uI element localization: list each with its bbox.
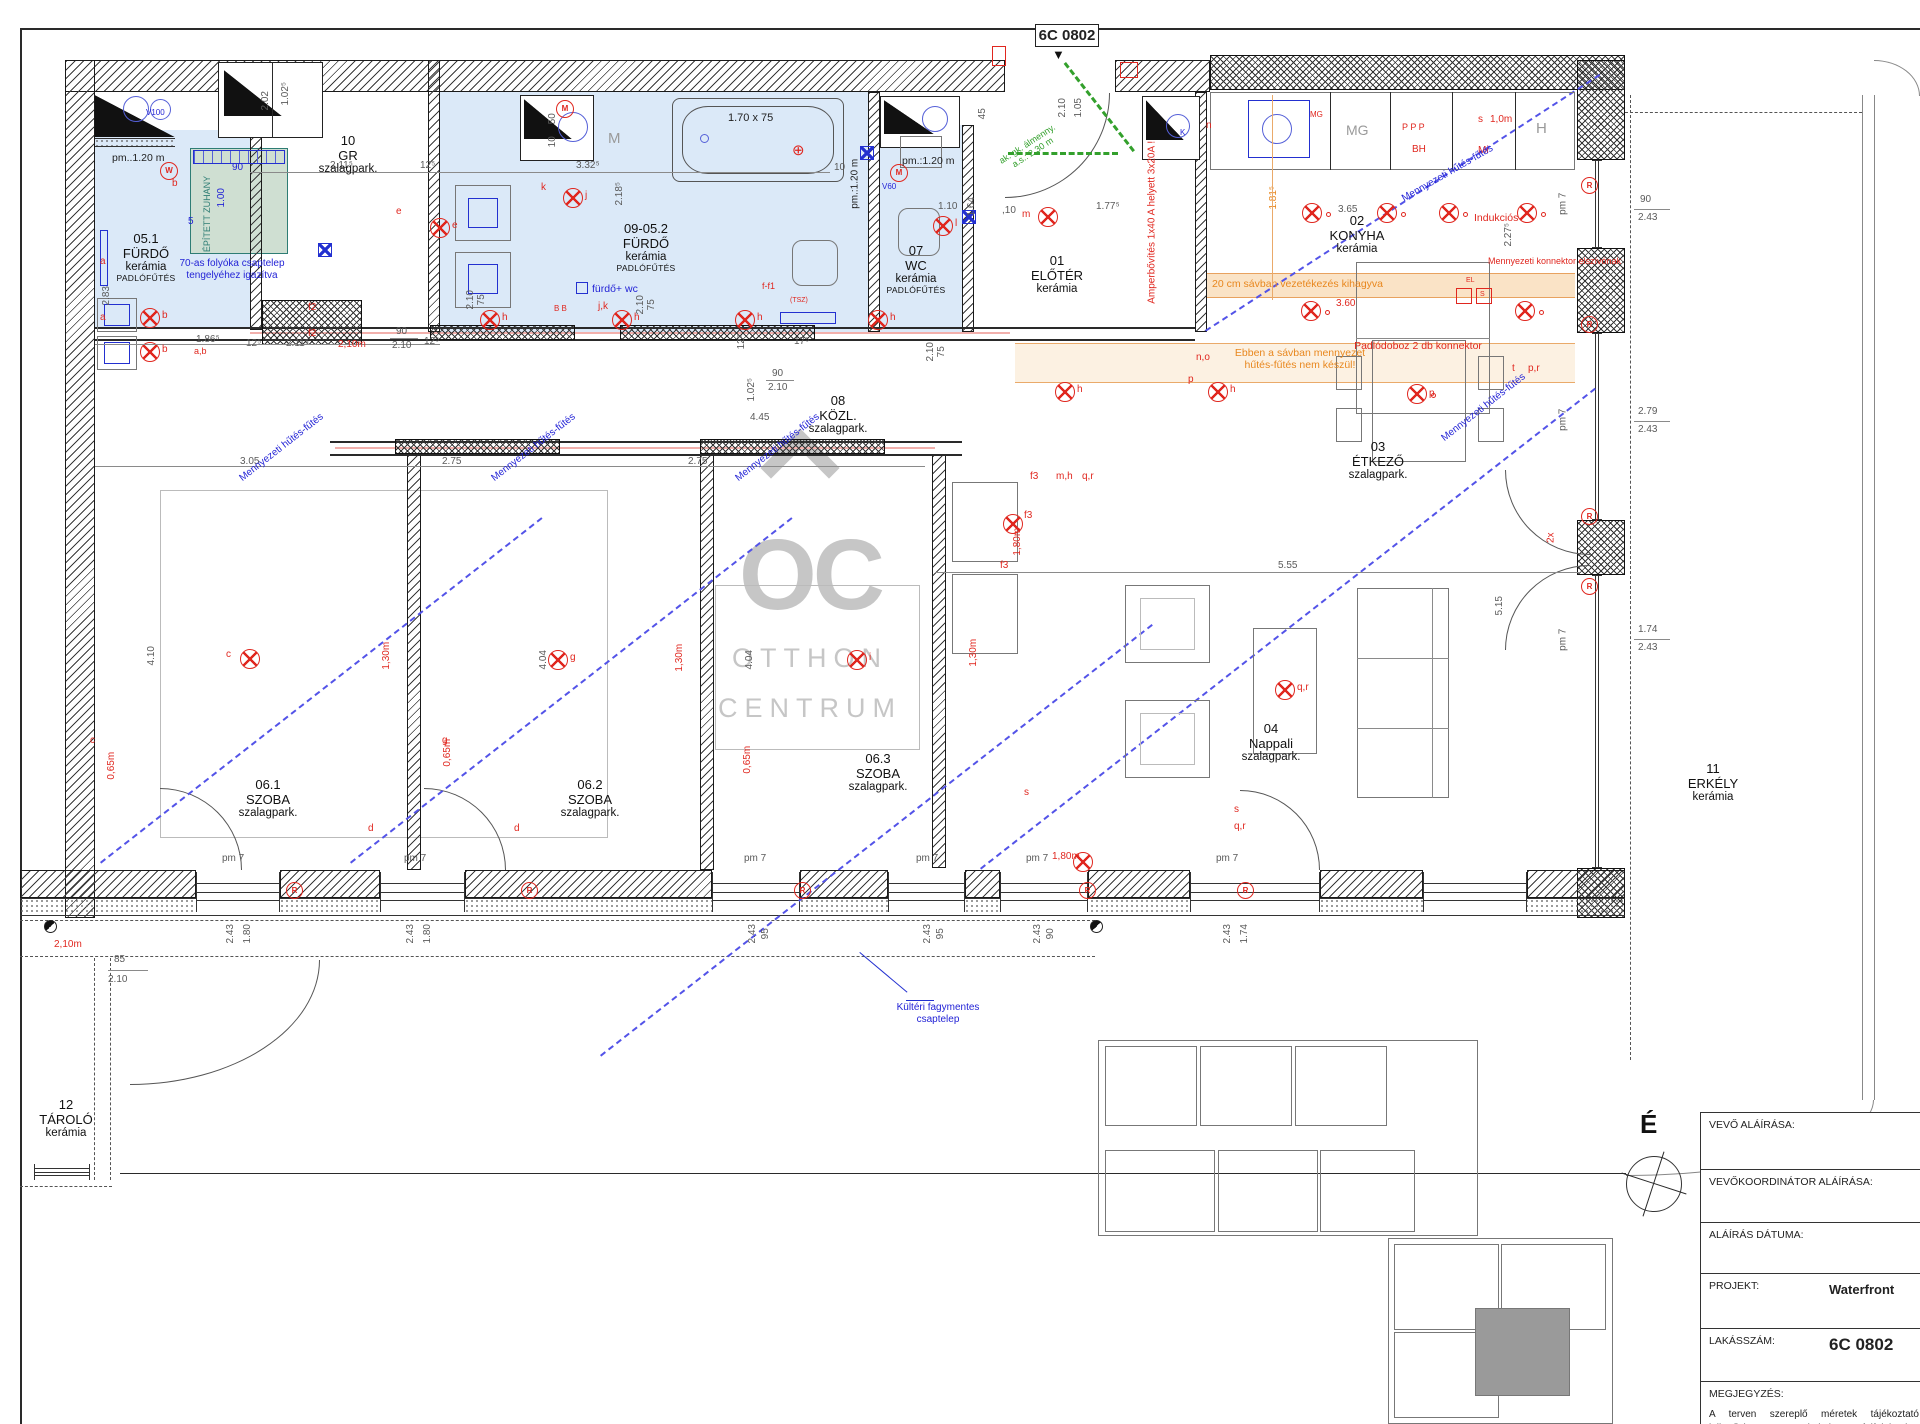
wall-top-kitchen	[1210, 55, 1625, 90]
shaft-div	[272, 62, 273, 138]
dim: 4.04	[538, 650, 550, 669]
dim: 2.02	[260, 91, 272, 110]
circuit-letter: a	[100, 256, 106, 268]
dim-line	[95, 344, 440, 345]
room-floorheating: PADLÓFŰTÉS	[116, 274, 175, 284]
room-label-06.3: 06.3SZOBAszalagpark.	[849, 752, 908, 794]
wall-bottom	[465, 870, 712, 898]
tub-drain	[700, 134, 709, 143]
dim: 1.10	[938, 201, 957, 213]
room-number: 06.2	[561, 778, 620, 793]
storage-window	[34, 1164, 90, 1180]
circuit-letter: h	[502, 312, 508, 324]
lamp	[563, 188, 583, 208]
circuit-letter: a,b	[194, 346, 207, 356]
circuit-letter: B B	[554, 304, 567, 313]
dim: 2.10	[925, 342, 937, 361]
shower-dim: 1.00	[216, 188, 228, 207]
shutter-motor: R	[1581, 316, 1598, 333]
mount-height: 1,80m	[1012, 528, 1024, 556]
appliance-h: H	[1536, 120, 1547, 137]
pocket-door	[620, 325, 815, 340]
window	[712, 872, 800, 912]
dim: pm 7	[1557, 409, 1569, 431]
shutter-motor: R	[286, 882, 303, 899]
circuit-letter: f-f1	[762, 281, 775, 291]
dim: 1.74	[1638, 624, 1657, 636]
title-block-row-2: ALÁÍRÁS DÁTUMA:	[1701, 1223, 1920, 1274]
north-label: É	[1640, 1110, 1657, 1140]
dim-line	[1634, 421, 1670, 422]
label-f2: f2	[308, 302, 316, 314]
dim: 2.43	[225, 924, 237, 943]
circuit-letter: n,o	[1196, 352, 1210, 364]
room-label-08: 08KÖZL.szalagpark.	[809, 394, 868, 436]
title-block-row-label: PROJEKT:	[1709, 1280, 1759, 1292]
dim: 2.10	[108, 974, 127, 986]
counter-div	[1515, 92, 1516, 170]
level-dot	[44, 920, 57, 933]
circuit-letter: q,r	[1297, 682, 1309, 694]
circuit-letter: p,r	[1528, 363, 1540, 375]
dim: 4.45	[750, 412, 769, 424]
dim: 12⁵	[736, 334, 748, 349]
lamp	[1208, 382, 1228, 402]
dim-orange: 1.81⁵	[1268, 186, 1280, 210]
dim: 10	[834, 162, 845, 174]
earth-symbol: ⊕	[792, 142, 805, 159]
dim: 2.10	[465, 290, 477, 309]
window	[1592, 160, 1602, 248]
lamp	[480, 310, 500, 330]
basin-bowl	[104, 342, 130, 364]
dim: pm 7	[404, 853, 426, 865]
armchair	[952, 574, 1018, 654]
island-div	[1356, 338, 1490, 339]
shutter-motor: R	[1581, 177, 1598, 194]
circuit-letter: e	[396, 206, 402, 218]
room-label-04: 04Nappaliszalagpark.	[1242, 722, 1301, 764]
dim: 2.43	[1638, 424, 1657, 436]
room-finish: szalagpark.	[1242, 751, 1301, 764]
sheet-frame-left	[20, 28, 22, 1424]
wall-bottom	[800, 870, 888, 898]
chair	[1336, 408, 1362, 442]
dim: 2.75	[442, 456, 461, 468]
dim: 2.43	[1222, 924, 1234, 943]
circuit-letter: s	[1234, 804, 1239, 816]
room-name: KÖZL.	[809, 409, 868, 424]
parapet-note: pm.:1.20 m	[902, 155, 955, 167]
entry-panel	[1120, 62, 1138, 78]
wall-gr-bath2	[428, 60, 440, 332]
dim: 85	[114, 954, 125, 966]
floor-plan-sheet: OC OTTHON CENTRUM RRRRRRRRRMMW2.021.02⁵2…	[0, 0, 1920, 1424]
title-block-row-1: VEVŐKOORDINÁTOR ALÁÍRÁSA:	[1701, 1170, 1920, 1223]
note-kulteri: Kültéri fagymentes csaptelep	[897, 1002, 980, 1025]
wall-left	[65, 60, 95, 918]
corridor-rail	[330, 454, 962, 456]
room-name: FÜRDŐ	[116, 247, 175, 262]
shutter-motor: R	[1581, 508, 1598, 525]
keyplan-unit-highlight	[1475, 1308, 1570, 1396]
room-number: 07	[886, 244, 945, 259]
title-block-row-4: LAKÁSSZÁM:6C 0802	[1701, 1329, 1920, 1382]
appliance-mg: MG	[1346, 122, 1369, 138]
lamp	[1515, 301, 1535, 321]
room-finish: kerámia	[1031, 283, 1083, 296]
room-floorheating: PADLÓFŰTÉS	[886, 286, 945, 296]
dim: 1.77⁵	[1096, 201, 1120, 213]
lamp	[612, 310, 632, 330]
facade-line	[1874, 95, 1875, 1100]
room-finish: szalagpark.	[239, 807, 298, 820]
dim: 90	[396, 326, 407, 338]
dim: 3.32⁵	[576, 160, 600, 172]
dim: 2.43	[1638, 212, 1657, 224]
lamp-dot	[1539, 310, 1544, 315]
room-number: 10	[319, 134, 378, 149]
circuit-letter: t	[1512, 363, 1515, 375]
dim: 90	[1045, 928, 1057, 939]
title-block-row-value: Waterfront	[1829, 1282, 1894, 1297]
lamp	[430, 218, 450, 238]
room-name: ERKÉLY	[1688, 777, 1738, 792]
circuit-letter: b	[172, 178, 178, 190]
dim: 12⁵	[420, 160, 435, 172]
note-indukcios: Indukciós	[1474, 212, 1518, 224]
sink-bowl	[1262, 114, 1292, 144]
keyplan-unit	[1105, 1046, 1197, 1126]
dim: 75	[646, 299, 658, 310]
dim: 2.11⁵	[286, 338, 309, 350]
room-name: WC	[886, 259, 945, 274]
wall-wc-eloter	[962, 125, 974, 332]
dim: pm 7	[744, 853, 766, 865]
window	[1190, 872, 1320, 912]
dim: pm 7	[916, 853, 938, 865]
facade-curve-top	[1874, 60, 1920, 96]
balcony-edge	[1630, 95, 1631, 1060]
sofa-cushion	[1357, 658, 1449, 659]
door-arc-nappali	[1240, 790, 1320, 870]
lamp	[847, 650, 867, 670]
dim: 95	[935, 928, 947, 939]
counter-div	[1390, 92, 1391, 170]
dim: pm 7	[1557, 629, 1569, 651]
circuit-letter: p	[1429, 388, 1435, 400]
title-block-row-label: ALÁÍRÁS DÁTUMA:	[1709, 1229, 1804, 1241]
room-number: 11	[1688, 762, 1738, 777]
room-label-05.1: 05.1FÜRDŐkerámiaPADLÓFŰTÉS	[116, 232, 175, 283]
title-block-row-label: LAKÁSSZÁM:	[1709, 1335, 1775, 1347]
circuit-letter: h	[890, 312, 896, 324]
orange-dim-line	[1272, 95, 1273, 300]
appliance-m: M	[608, 130, 621, 147]
wall-bottom	[1527, 870, 1625, 898]
lamp-dot	[1401, 212, 1406, 217]
circuit-letter: d	[514, 823, 520, 835]
window	[1592, 333, 1602, 520]
title-block-row-label: VEVŐ ALÁÍRÁSA:	[1709, 1119, 1795, 1131]
dim: 2.43	[747, 924, 759, 943]
induction-box	[1456, 288, 1472, 304]
dim-line	[1634, 639, 1670, 640]
dim-3-60: 3.60	[1336, 298, 1355, 310]
appliance-p: P P P	[1402, 122, 1425, 132]
room-label-06.2: 06.2SZOBAszalagpark.	[561, 778, 620, 820]
lamp	[1301, 301, 1321, 321]
room-name: TÁROLÓ	[39, 1113, 92, 1128]
title-block: VEVŐ ALÁÍRÁSA:VEVŐKOORDINÁTOR ALÁÍRÁSA:A…	[1700, 1112, 1920, 1424]
level-dot	[1090, 920, 1103, 933]
window	[196, 872, 280, 912]
dim: 1.64	[966, 197, 978, 216]
dim: 5.55	[1278, 560, 1297, 572]
dim: pm 7	[1026, 853, 1048, 865]
circuit-letter: l	[955, 218, 957, 230]
circuit-letter: i	[869, 652, 871, 664]
dim: 2.43	[405, 924, 417, 943]
toilet	[792, 240, 838, 286]
room-number: 05.1	[116, 232, 175, 247]
wall-top-left	[65, 60, 1005, 92]
room-floorheating: PADLÓFŰTÉS	[616, 264, 675, 274]
unit-code-box: 6C 0802	[1035, 24, 1099, 47]
parapet-note: pm.:1.20 m	[849, 159, 861, 209]
room-number: 02	[1330, 214, 1385, 229]
room-number: 12	[39, 1098, 92, 1113]
balcony-edge	[1625, 112, 1862, 113]
circuit-letter: h	[1077, 384, 1083, 396]
hc-label: Mennyezeti hűtés-fűtés	[237, 411, 326, 484]
dim: 1.80	[422, 924, 434, 943]
circuit-letter: j	[585, 190, 587, 202]
dim: 2.27⁵	[1503, 223, 1515, 247]
dim: 2.18⁵	[614, 182, 626, 206]
dim: 90	[772, 368, 783, 380]
dim: 1.86⁵	[196, 334, 220, 346]
wall-bottom	[1088, 870, 1190, 898]
appliance-mg-small: MG	[1310, 110, 1323, 119]
room-number: 01	[1031, 254, 1083, 269]
dim: 1.02⁵	[746, 378, 758, 402]
valve	[860, 146, 874, 160]
lamp	[933, 216, 953, 236]
room-finish: szalagpark.	[849, 781, 908, 794]
circuit-letter: e	[452, 220, 458, 232]
dim: 1.74	[1239, 924, 1251, 943]
room-label-02: 02KONYHAkerámia	[1330, 214, 1385, 256]
entry-opening	[1006, 61, 1114, 91]
mount-height: 2,10m	[54, 939, 82, 951]
label-tsz: (TSZ)	[790, 297, 808, 305]
circuit-letter: j,k	[598, 301, 608, 313]
circuit-letter: s	[1024, 787, 1029, 799]
circuit-letter: f3	[1000, 560, 1008, 572]
lamp	[1275, 680, 1295, 700]
pocket-door	[430, 325, 575, 340]
note-zuhany: ÉPÍTETT ZUHANY	[202, 142, 212, 252]
circuit-letter: q,r	[1082, 471, 1094, 483]
circuit-letter: b	[162, 310, 168, 322]
circuit-letter: d	[368, 823, 374, 835]
door-arc-terrace	[130, 960, 320, 1085]
dim: 12⁵	[246, 338, 261, 350]
dim: 10	[547, 136, 559, 147]
room-label-11: 11ERKÉLYkerámia	[1688, 762, 1738, 804]
storage-wall-dashed	[94, 958, 95, 1180]
room-name: SZOBA	[239, 793, 298, 808]
room-name: FÜRDŐ	[616, 237, 675, 252]
circuit-letter: p	[1188, 374, 1194, 386]
lamp	[868, 310, 888, 330]
lamp	[1038, 207, 1058, 227]
dim: 75	[476, 294, 488, 305]
keyplan-unit	[1295, 1046, 1387, 1126]
title-block-row-3: PROJEKT:Waterfront	[1701, 1274, 1920, 1329]
dim: ,10	[1002, 205, 1016, 217]
circuit-letter: c	[226, 649, 231, 661]
shutter-motor: R	[794, 882, 811, 899]
lamp	[1055, 382, 1075, 402]
room-name: GR	[319, 149, 378, 164]
shutter-motor: R	[1237, 882, 1254, 899]
mount-height: 0,65m	[106, 752, 118, 780]
room-label-09-05.2: 09-05.2FÜRDŐkerámiaPADLÓFŰTÉS	[616, 222, 675, 273]
shutter-motor: R	[1079, 882, 1096, 899]
note-20cm: 20 cm sávban vezetékezés kihagyva	[1212, 278, 1383, 290]
valve	[318, 243, 332, 257]
title-block-note: A terven szereplő méretek tájékoztató je…	[1701, 1402, 1920, 1424]
mount-height: 2,10m	[338, 339, 366, 351]
dim: 2.10	[1057, 98, 1069, 117]
circuit-letter: m	[1022, 209, 1030, 221]
pier-right	[1577, 60, 1625, 160]
note-furdowc: fürdő+ wc	[592, 283, 638, 295]
room-number: 09-05.2	[616, 222, 675, 237]
room-name: ÉTKEZŐ	[1349, 455, 1408, 470]
circuit-letter: f3	[1030, 471, 1038, 483]
circuit-letter: h	[757, 312, 763, 324]
mount-height: 1,30m	[968, 639, 980, 667]
room-name: SZOBA	[849, 767, 908, 782]
mount-height: 0,65m	[742, 746, 754, 774]
vent-circle	[922, 106, 948, 132]
counter-div	[1452, 92, 1453, 170]
vent-label-v100: V100	[146, 108, 165, 117]
circuit-letter: a	[100, 312, 106, 324]
mount-height: 1,30m	[381, 642, 393, 670]
dim: 75	[936, 346, 948, 357]
lamp	[1517, 203, 1537, 223]
basin-bowl	[468, 198, 498, 228]
sofa	[1357, 588, 1449, 798]
dim: 1.02⁵	[280, 82, 292, 106]
lamp	[240, 649, 260, 669]
dim: pm 7	[1216, 853, 1238, 865]
dim: 2.10	[768, 382, 787, 394]
thermostat-box	[576, 282, 588, 294]
lamp-dot	[1325, 310, 1330, 315]
room-finish: szalagpark.	[561, 807, 620, 820]
lamp	[548, 650, 568, 670]
circuit-letter: g	[570, 652, 576, 664]
circuit-letter: b	[162, 344, 168, 356]
dim-line	[108, 970, 148, 971]
circuit-letter: k	[541, 182, 546, 194]
label-s: s	[1478, 114, 1483, 126]
room-label-01: 01ELŐTÉRkerámia	[1031, 254, 1083, 296]
dim: 1.80	[242, 924, 254, 943]
dim: 5.15	[1494, 596, 1506, 615]
ledge	[95, 138, 175, 147]
circuit-letter: q,r	[1234, 821, 1246, 833]
circuit-letter: m,h	[1056, 471, 1073, 483]
wall-bottom	[965, 870, 1000, 898]
dim: 12⁵	[424, 336, 439, 348]
shaft-wedge	[224, 70, 282, 116]
sofa-cushion	[1357, 728, 1449, 729]
lamp	[140, 308, 160, 328]
armchair-seat	[1140, 713, 1195, 765]
window	[1423, 872, 1527, 912]
dim: 50	[547, 113, 559, 124]
meter-symbol	[992, 46, 1006, 66]
label-s2: S	[1480, 291, 1485, 299]
dim: pm 7	[1557, 193, 1569, 215]
lamp	[1407, 384, 1427, 404]
wall-0603-nappali	[932, 455, 946, 868]
shutter-motor: R	[1581, 578, 1598, 595]
sheet-frame-top	[20, 28, 1920, 30]
dim: 1.05	[1073, 98, 1085, 117]
dim: 2.83	[101, 286, 113, 305]
storage-wall-dashed	[110, 958, 111, 1180]
room-label-12: 12TÁROLÓkerámia	[39, 1098, 92, 1140]
room-name: SZOBA	[561, 793, 620, 808]
terrace-edge	[20, 920, 1095, 921]
room-finish: szalagpark.	[809, 423, 868, 436]
dim-line	[766, 380, 794, 381]
shutter-motor: R	[521, 882, 538, 899]
mount-height: 1,80m	[1052, 851, 1080, 863]
room-label-07: 07WCkerámiaPADLÓFŰTÉS	[886, 244, 945, 295]
shower-dim: 5	[188, 216, 194, 228]
mount-height: 1,30m	[674, 644, 686, 672]
room-number: 03	[1349, 440, 1408, 455]
title-block-row-0: VEVŐ ALÁÍRÁSA:	[1701, 1113, 1920, 1170]
dim: 2.43	[1638, 642, 1657, 654]
window	[888, 872, 965, 912]
tub-size: 1.70 x 75	[728, 112, 773, 125]
circuit-letter: h	[1230, 384, 1236, 396]
circuit-letter: f3	[1024, 510, 1032, 522]
room-number: 06.3	[849, 752, 908, 767]
window	[1592, 575, 1602, 868]
wall-0602-0603	[700, 455, 714, 870]
room-number: 08	[809, 394, 868, 409]
wall-bottom	[1320, 870, 1423, 898]
lamp	[1302, 203, 1322, 223]
room-finish: kerámia	[1330, 243, 1385, 256]
note-ebben: Ebben a sávban mennyezet hűtés-fűtés nem…	[1235, 347, 1365, 371]
counter-div	[1330, 92, 1331, 170]
dim: 45	[977, 108, 989, 119]
dim: 2.75	[688, 456, 707, 468]
dim-line	[390, 338, 418, 339]
keyplan-unit	[1320, 1150, 1415, 1232]
